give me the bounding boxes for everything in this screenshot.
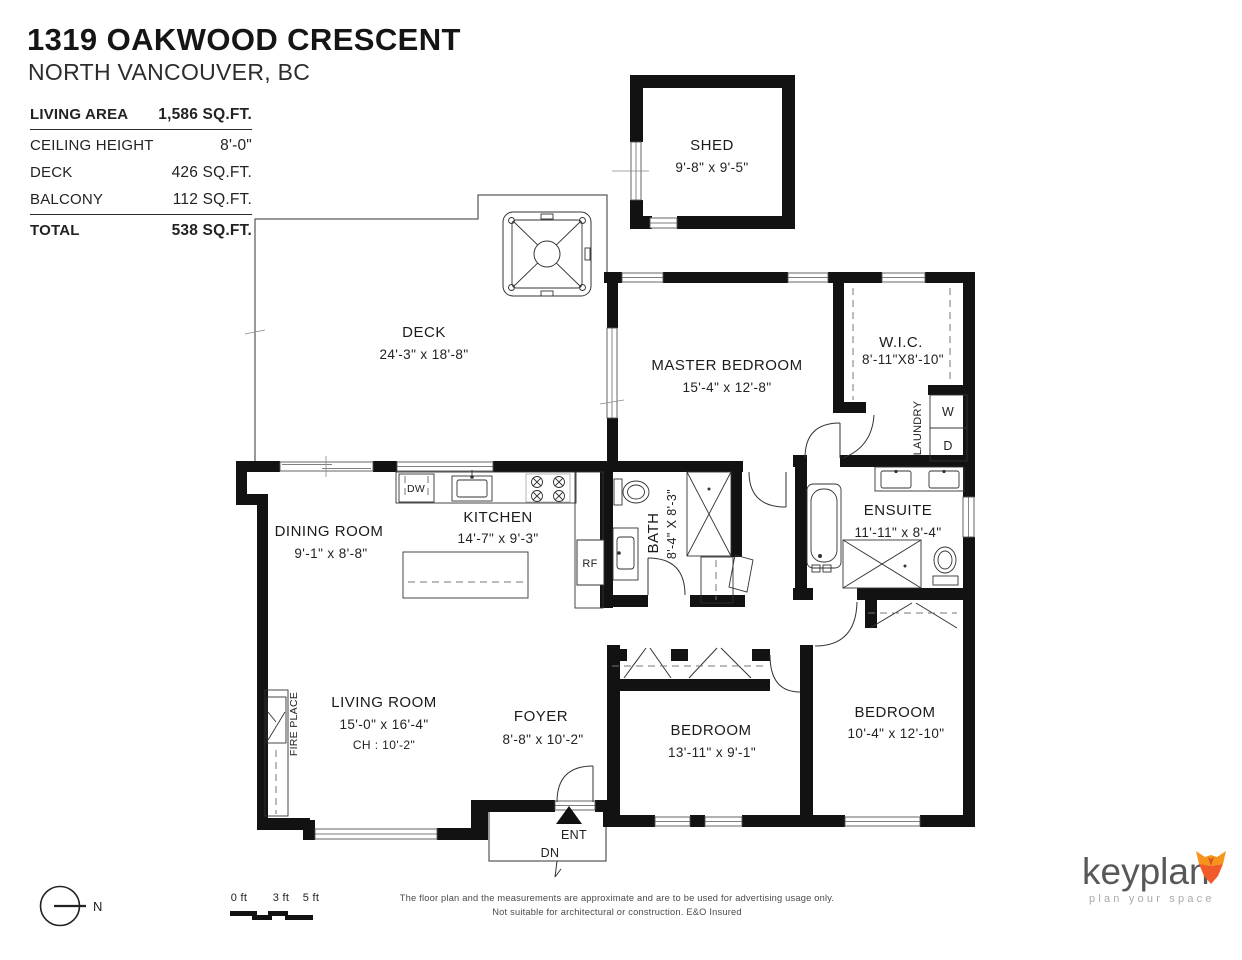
deck-dims: 24'-3" x 18'-8" [379, 347, 468, 362]
master-bedroom-label: MASTER BEDROOM [651, 357, 802, 374]
stairs-down-label: DN [541, 846, 560, 860]
deck-label: DECK [402, 324, 446, 341]
stove-burners [532, 477, 565, 502]
bath-label: BATH [645, 513, 662, 554]
living-room-ceiling: CH : 10'-2" [353, 738, 415, 752]
bedroom1-dims: 13'-11" x 9'-1" [668, 745, 756, 760]
fireplace-fixture [265, 690, 288, 816]
laundry-label: LAUNDRY [912, 400, 924, 455]
master-bedroom-dims: 15'-4" x 12'-8" [682, 380, 771, 395]
entry-porch [489, 806, 606, 877]
foyer-dims: 8'-8" x 10'-2" [502, 732, 583, 747]
fireplace-label: FIRE PLACE [288, 692, 300, 756]
dryer-label: D [943, 439, 952, 453]
hot-tub [503, 212, 591, 296]
washer-label: W [942, 405, 954, 419]
brand-tagline: plan your space [1089, 893, 1232, 905]
kitchen-label: KITCHEN [463, 509, 532, 526]
fox-icon [1195, 849, 1227, 885]
dining-room-dims: 9'-1" x 8'-8" [294, 546, 367, 561]
ensuite-label: ENSUITE [864, 502, 933, 519]
floor-plan-drawing: SHED 9'-8" x 9'-5" DECK 24'-3" x 18'-8" … [0, 0, 1242, 960]
bath-dims: 8'-4" X 8'-3" [665, 489, 679, 559]
bedroom1-label: BEDROOM [670, 722, 751, 739]
shed-dims: 9'-8" x 9'-5" [675, 160, 748, 175]
scale-3: 3 ft [273, 892, 290, 904]
entry-label: ENT [561, 828, 587, 842]
north-arrow: N [41, 887, 103, 926]
shed-label: SHED [690, 137, 734, 154]
kitchen-dims: 14'-7" x 9'-3" [457, 531, 538, 546]
north-label: N [93, 899, 103, 914]
disclaimer-line-1: The floor plan and the measurements are … [346, 892, 888, 906]
keyplan-logo: keyplan plan your space [1082, 852, 1232, 905]
dishwasher-label: DW [407, 483, 425, 495]
scale-0: 0 ft [231, 892, 248, 904]
wic-label: W.I.C. [879, 334, 923, 351]
bedroom2-dims: 10'-4" x 12'-10" [848, 726, 945, 741]
wic-dims: 8'-11"X8'-10" [862, 352, 944, 367]
bedroom2-label: BEDROOM [854, 704, 935, 721]
foyer-label: FOYER [514, 708, 568, 725]
dining-room-label: DINING ROOM [275, 523, 384, 540]
living-room-dims: 15'-0" x 16'-4" [339, 717, 428, 732]
scale-5: 5 ft [303, 892, 320, 904]
living-room-label: LIVING ROOM [331, 694, 437, 711]
floorplan-page: 1319 OAKWOOD CRESCENT NORTH VANCOUVER, B… [0, 0, 1242, 960]
ensuite-dims: 11'-11" x 8'-4" [854, 525, 941, 540]
disclaimer-line-2: Not suitable for architectural or constr… [346, 906, 888, 920]
fridge-label: RF [582, 558, 597, 570]
scale-bar: 0 ft 3 ft 5 ft [230, 892, 319, 920]
disclaimer-text: The floor plan and the measurements are … [346, 892, 888, 919]
